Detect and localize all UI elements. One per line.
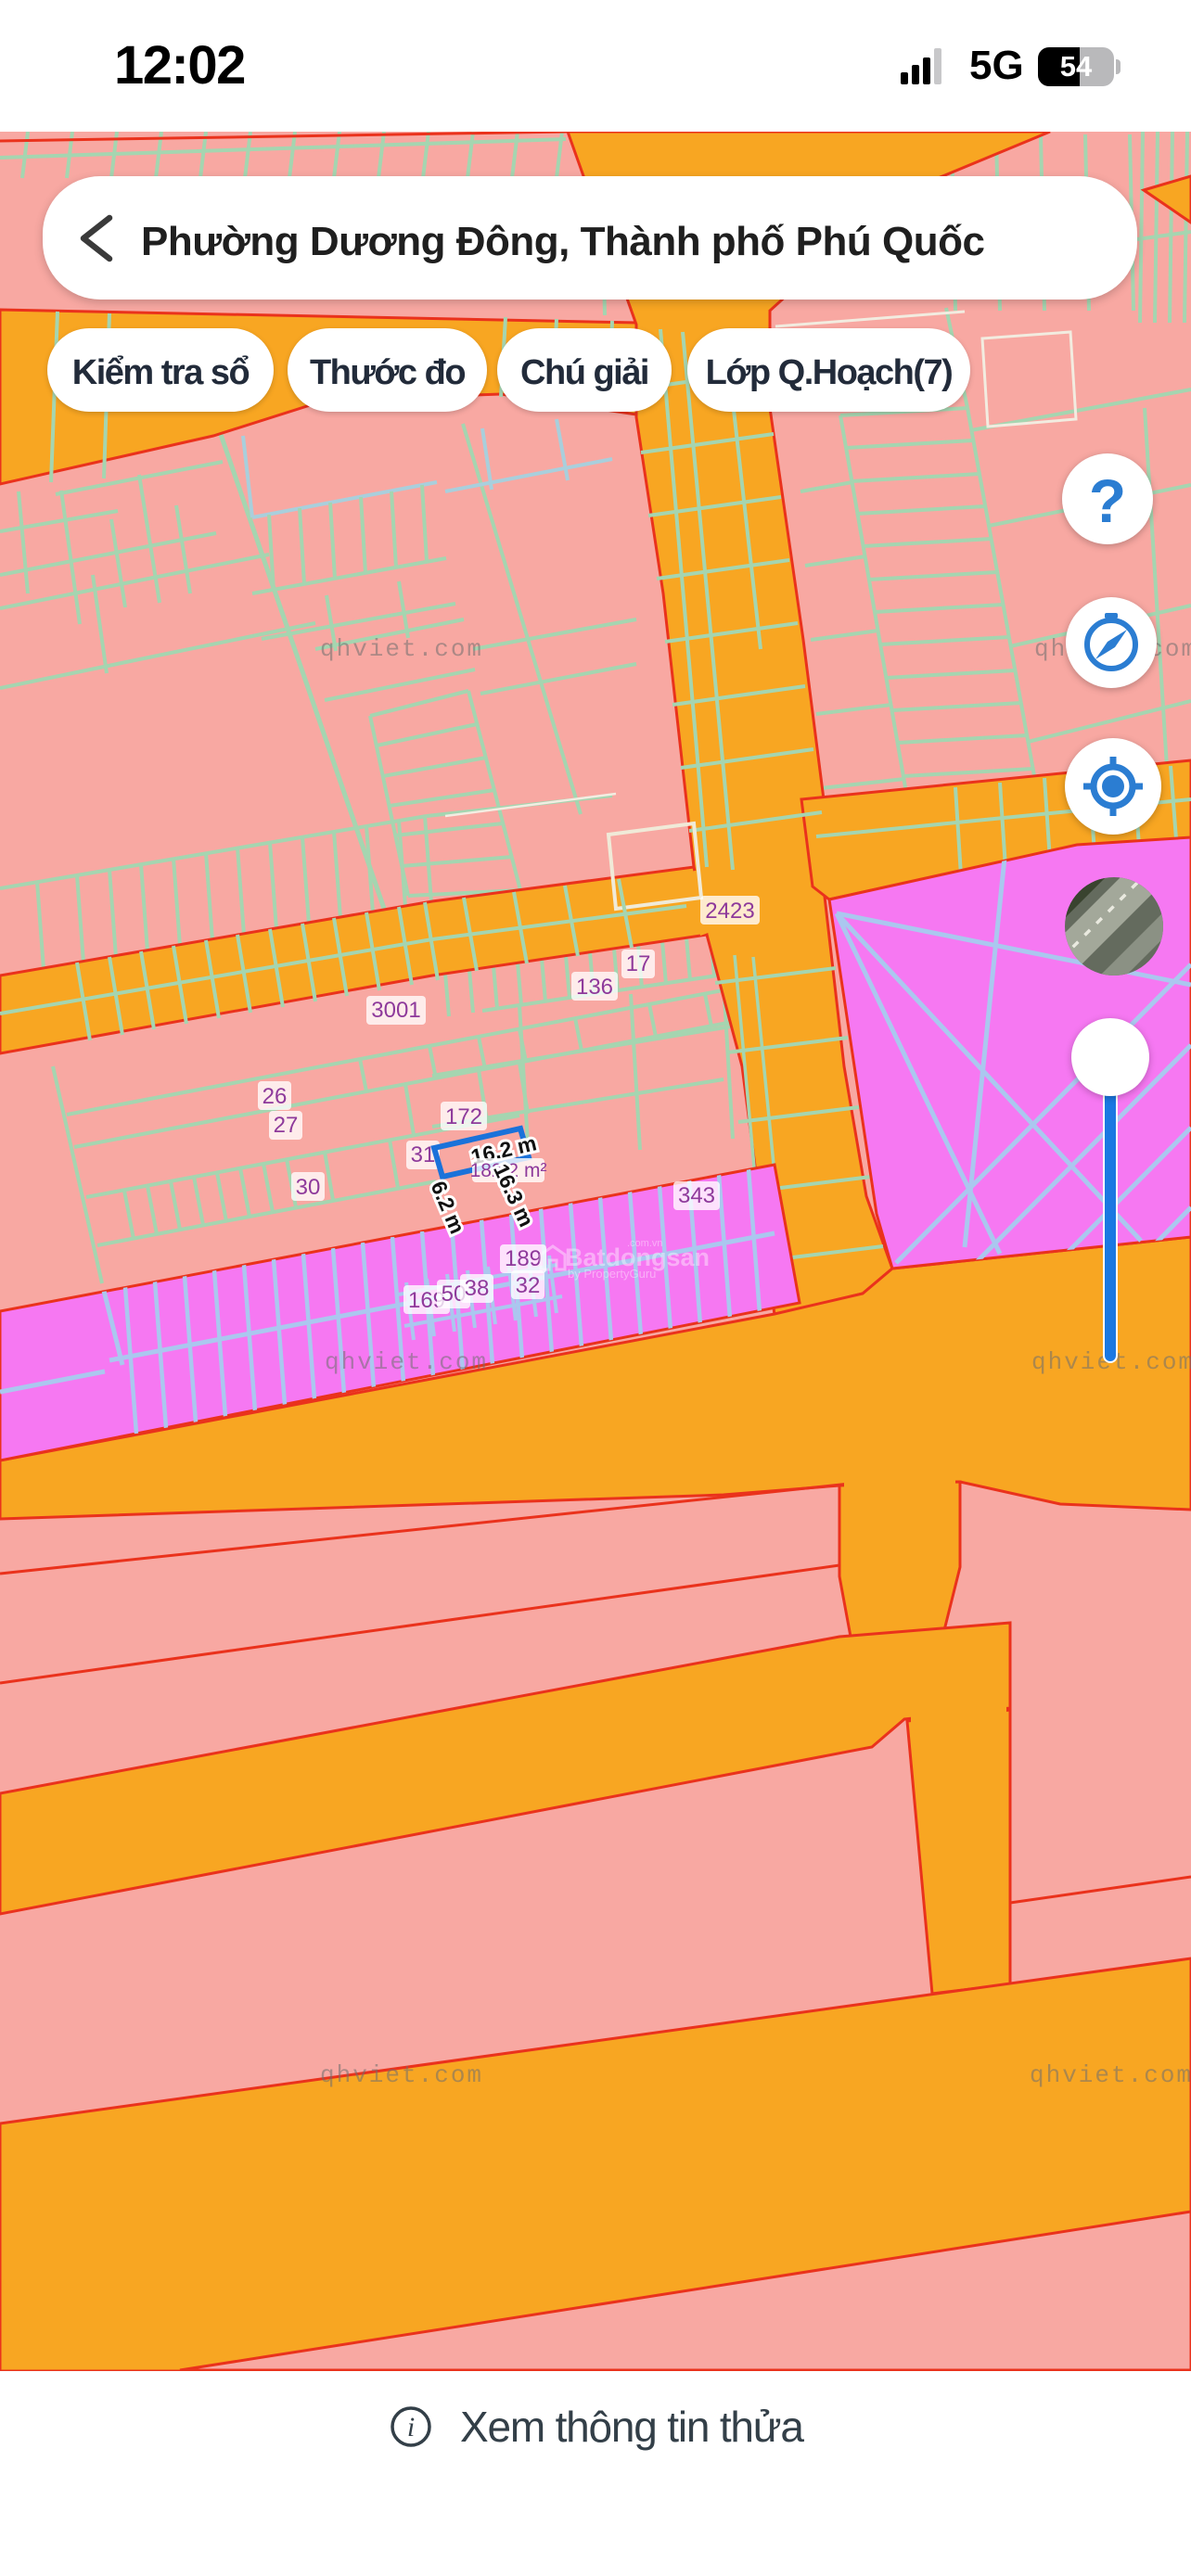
- svg-text:2423: 2423: [705, 899, 754, 924]
- svg-text:136: 136: [576, 975, 613, 1000]
- svg-text:172: 172: [445, 1104, 482, 1129]
- svg-text:26: 26: [263, 1084, 288, 1109]
- svg-text:qhviet.com: qhviet.com: [320, 2061, 483, 2089]
- svg-text:by PropertyGuru: by PropertyGuru: [568, 1267, 656, 1281]
- svg-text:qhviet.com: qhviet.com: [320, 635, 483, 663]
- svg-text:38: 38: [465, 1276, 490, 1301]
- svg-text:i: i: [407, 2412, 415, 2442]
- svg-text:?: ?: [1089, 466, 1126, 535]
- svg-text:qhviet.com: qhviet.com: [1030, 2061, 1191, 2089]
- svg-text:343: 343: [678, 1183, 715, 1208]
- svg-text:30: 30: [296, 1175, 321, 1200]
- svg-text:32: 32: [516, 1273, 541, 1298]
- svg-text:189: 189: [505, 1246, 542, 1271]
- svg-text:27: 27: [274, 1113, 299, 1138]
- svg-text:.com.vn: .com.vn: [627, 1238, 663, 1249]
- svg-text:qhviet.com: qhviet.com: [325, 1348, 488, 1376]
- svg-text:3001: 3001: [371, 998, 420, 1023]
- svg-text:17: 17: [626, 951, 651, 976]
